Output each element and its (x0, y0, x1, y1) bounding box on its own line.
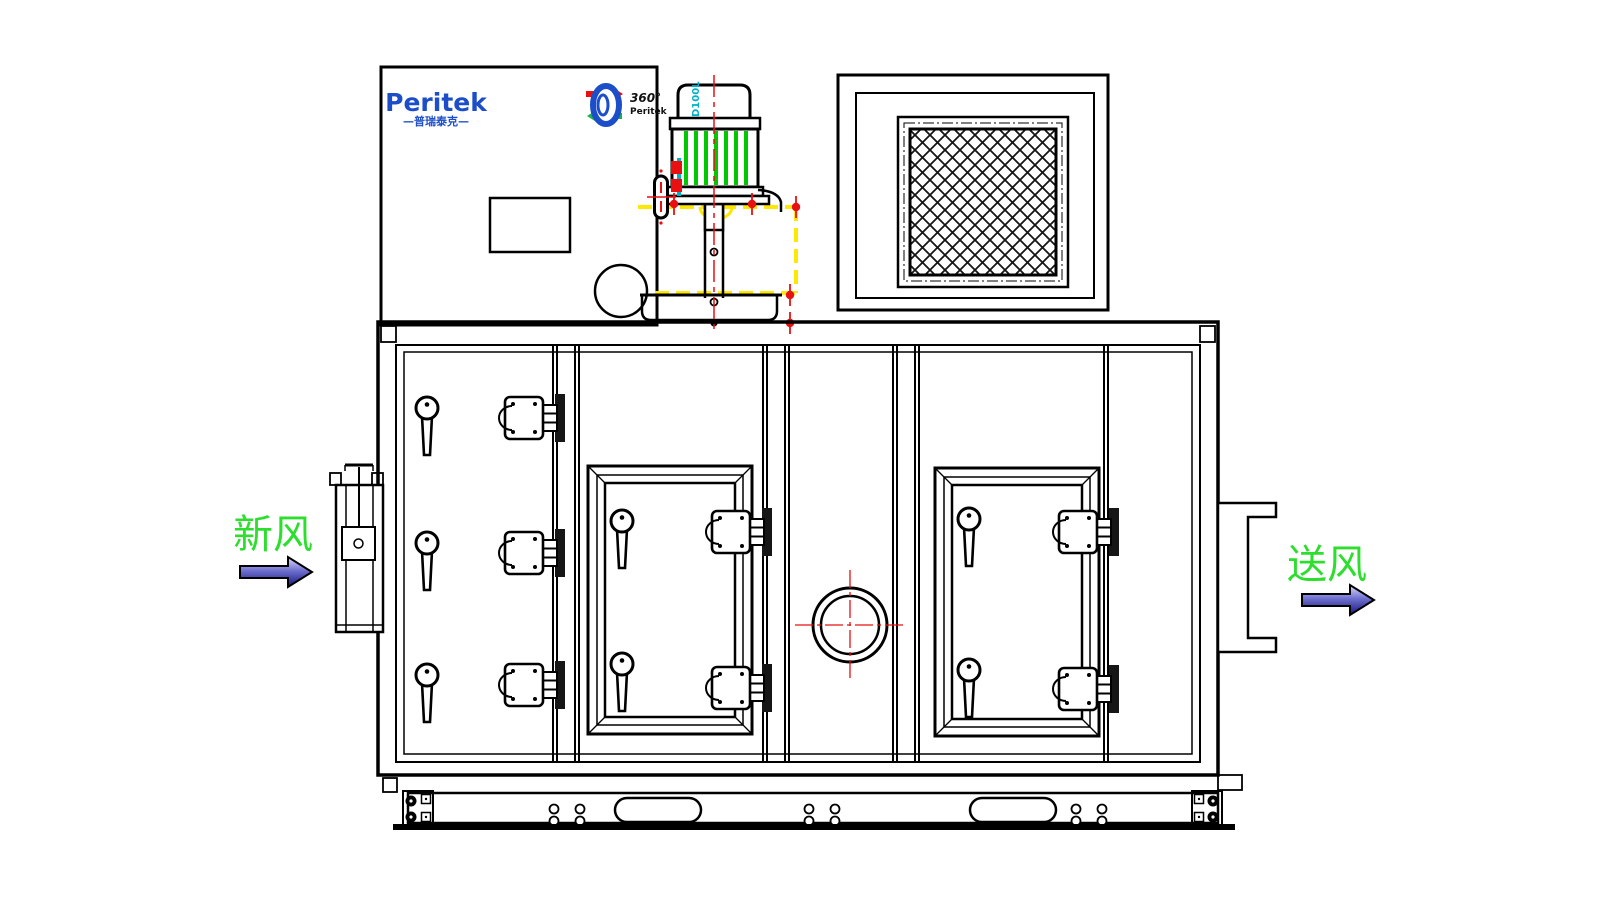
base-lifting-slot (970, 798, 1056, 822)
motor-support-column (640, 204, 782, 320)
door-handle (958, 508, 980, 566)
brand-wordmark-cn: —普瑞泰克— (403, 114, 469, 128)
left-access-panel (416, 394, 565, 722)
fresh-air-label: 新风 (233, 512, 313, 558)
door-latch (1053, 665, 1119, 713)
rotor-degree-label: 360° (630, 91, 661, 105)
door-latch (706, 664, 772, 712)
corner-step (383, 778, 397, 792)
red-bolt (792, 196, 800, 218)
supply-air-arrow (1302, 585, 1374, 615)
technical-drawing-canvas: Peritek —普瑞泰克— 360° Peritek (0, 0, 1613, 897)
door-latch (499, 661, 565, 709)
door-handle (416, 397, 438, 455)
red-bolt (786, 284, 794, 306)
fresh-air-inlet (330, 465, 383, 632)
filter-mesh (910, 129, 1056, 275)
door-handle (611, 653, 633, 711)
rotor-logo: 360° Peritek (586, 86, 668, 124)
supply-air-outlet (1218, 503, 1276, 652)
door-handle (611, 510, 633, 568)
corner-step (1200, 326, 1215, 342)
brand-wordmark: Peritek (385, 88, 488, 117)
door-handle (416, 664, 438, 722)
cabinet-dividers (553, 346, 1108, 761)
inspection-port (795, 570, 905, 680)
supply-air-label: 送风 (1287, 542, 1367, 588)
base-frame (393, 791, 1235, 827)
door-handle (958, 659, 980, 717)
dehumidifier-technical-drawing: Peritek —普瑞泰克— 360° Peritek (0, 0, 1613, 897)
cable-gland (595, 265, 647, 317)
brand-panel-section: Peritek —普瑞泰克— 360° Peritek (381, 67, 668, 325)
filter-section (838, 75, 1108, 310)
corner-step (1218, 775, 1242, 790)
corner-step (381, 326, 396, 342)
panel-cutout (490, 198, 570, 252)
right-door (935, 468, 1119, 736)
door-latch (1053, 508, 1119, 556)
fresh-air-arrow (240, 557, 312, 587)
door-latch (706, 508, 772, 556)
door-handle (416, 532, 438, 590)
base-lifting-slot (615, 798, 701, 822)
rotor-brand-label: Peritek (630, 107, 668, 117)
motor-cooling-fins (686, 131, 746, 185)
door-latch (499, 394, 565, 442)
motor-model-label: D100L (691, 81, 702, 117)
middle-door (588, 466, 772, 734)
door-latch (499, 529, 565, 577)
